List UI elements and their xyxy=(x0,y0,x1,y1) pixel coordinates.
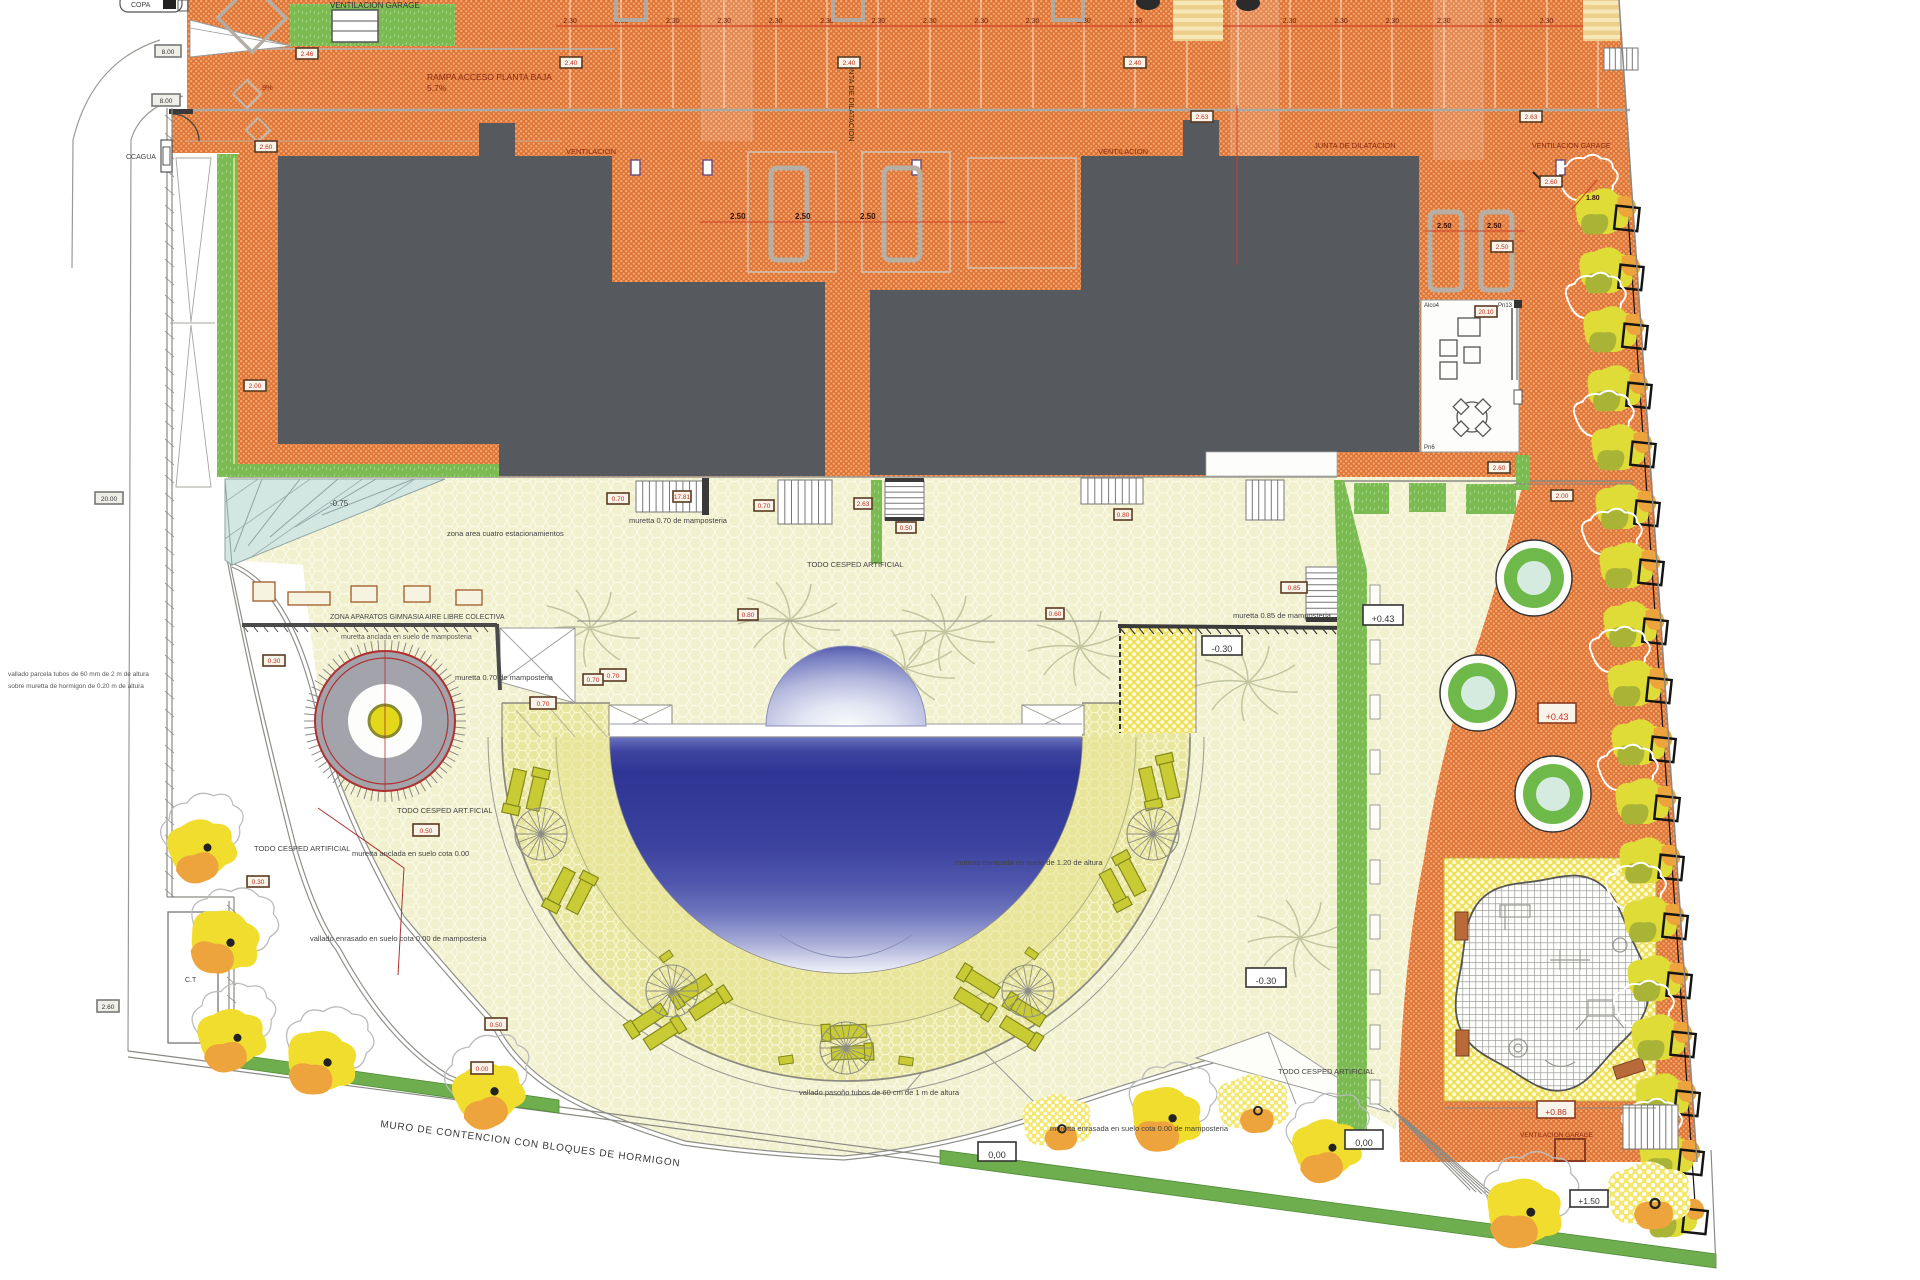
svg-text:+0.43: +0.43 xyxy=(1372,614,1395,624)
svg-text:0.50: 0.50 xyxy=(490,1022,503,1029)
svg-text:20.10: 20.10 xyxy=(1478,310,1494,316)
svg-text:2.00: 2.00 xyxy=(249,383,262,390)
svg-text:2.30: 2.30 xyxy=(769,18,783,25)
svg-text:0.30: 0.30 xyxy=(268,658,281,665)
svg-text:2.30: 2.30 xyxy=(666,18,680,25)
svg-text:muretta 0.85 de mamposteria: muretta 0.85 de mamposteria xyxy=(1233,611,1332,620)
svg-text:2.50: 2.50 xyxy=(795,212,811,221)
svg-text:2.30: 2.30 xyxy=(974,18,988,25)
svg-text:2.30: 2.30 xyxy=(923,18,937,25)
svg-text:-0.30: -0.30 xyxy=(1256,976,1277,986)
svg-text:2.30: 2.30 xyxy=(1129,18,1143,25)
svg-text:2.60: 2.60 xyxy=(1493,465,1506,472)
svg-text:2.46: 2.46 xyxy=(301,51,314,58)
svg-text:+1.50: +1.50 xyxy=(1578,1196,1600,1206)
svg-text:muretta anclada en suelo de ma: muretta anclada en suelo de mamposteria xyxy=(341,634,472,641)
svg-text:2.30: 2.30 xyxy=(1283,18,1297,25)
svg-text:2.50: 2.50 xyxy=(1496,244,1509,251)
svg-text:VENTILACION: VENTILACION xyxy=(566,147,616,156)
svg-text:2.50: 2.50 xyxy=(1437,221,1452,230)
svg-text:2.00: 2.00 xyxy=(1556,493,1569,500)
svg-text:2.60: 2.60 xyxy=(102,1004,115,1011)
svg-text:2.63: 2.63 xyxy=(1196,114,1209,121)
svg-text:0.70: 0.70 xyxy=(758,503,771,510)
svg-text:0.80: 0.80 xyxy=(742,612,755,619)
svg-text:RAMPA ACCESO PLANTA BAJA: RAMPA ACCESO PLANTA BAJA xyxy=(427,72,552,82)
svg-text:2.63: 2.63 xyxy=(1525,114,1538,121)
svg-text:2.40: 2.40 xyxy=(1129,60,1142,67)
svg-text:-0.30: -0.30 xyxy=(1212,644,1233,654)
svg-text:2.30: 2.30 xyxy=(1386,18,1400,25)
svg-text:8.00: 8.00 xyxy=(160,98,173,105)
svg-text:VENTILACION GARAGE: VENTILACION GARAGE xyxy=(1520,1132,1594,1139)
svg-text:JUNTA DE DILATACION: JUNTA DE DILATACION xyxy=(847,60,856,142)
svg-text:2.40: 2.40 xyxy=(565,60,578,67)
svg-text:vallado pasoño tubos de 60 cm: vallado pasoño tubos de 60 cm de 1 m de … xyxy=(799,1088,960,1097)
svg-text:2.30: 2.30 xyxy=(563,18,577,25)
svg-text:JUNTA DE DILATACION: JUNTA DE DILATACION xyxy=(1314,141,1396,150)
svg-text:2.40: 2.40 xyxy=(843,60,856,67)
svg-text:0.70: 0.70 xyxy=(612,496,625,503)
svg-text:17.81: 17.81 xyxy=(674,494,691,501)
svg-text:2.50: 2.50 xyxy=(730,212,746,221)
svg-text:VENTILACION GARAGE: VENTILACION GARAGE xyxy=(330,1,420,10)
svg-text:1.80: 1.80 xyxy=(1586,195,1600,202)
svg-text:muretta 0.70 de mamposteria: muretta 0.70 de mamposteria xyxy=(629,516,728,525)
svg-text:COPA: COPA xyxy=(131,2,151,9)
svg-text:0,00: 0,00 xyxy=(1355,1138,1373,1148)
svg-text:0.50: 0.50 xyxy=(900,525,913,532)
svg-text:zona area cuatro estacionamien: zona area cuatro estacionamientos xyxy=(447,529,564,538)
svg-text:TODO CESPED ARTIFICIAL: TODO CESPED ARTIFICIAL xyxy=(1278,1067,1374,1076)
svg-text:0.00: 0.00 xyxy=(476,1066,489,1073)
svg-text:TODO CESPED ARTIFICIAL: TODO CESPED ARTIFICIAL xyxy=(807,560,903,569)
svg-text:2.50: 2.50 xyxy=(1487,221,1502,230)
svg-text:2.30: 2.30 xyxy=(1334,18,1348,25)
svg-text:muretta anclada en suelo cota: muretta anclada en suelo cota 0.00 xyxy=(352,849,469,858)
svg-text:0.70: 0.70 xyxy=(587,677,600,684)
svg-text:2.30: 2.30 xyxy=(1026,18,1040,25)
svg-text:0.30: 0.30 xyxy=(252,879,265,886)
svg-text:2.30: 2.30 xyxy=(717,18,731,25)
svg-text:2.63: 2.63 xyxy=(857,501,870,508)
svg-text:ZONA APARATOS GIMNASIA AIRE LI: ZONA APARATOS GIMNASIA AIRE LIBRE COLECT… xyxy=(330,614,505,621)
svg-text:2.30: 2.30 xyxy=(872,18,886,25)
svg-text:0.70: 0.70 xyxy=(537,701,550,708)
svg-text:2.30: 2.30 xyxy=(1437,18,1451,25)
svg-text:0,00: 0,00 xyxy=(988,1150,1006,1160)
svg-text:+0.43: +0.43 xyxy=(1546,712,1569,722)
svg-text:8.00: 8.00 xyxy=(162,49,175,56)
svg-text:20.00: 20.00 xyxy=(101,496,118,503)
svg-text:9%: 9% xyxy=(262,83,273,92)
svg-text:2.50: 2.50 xyxy=(860,212,876,221)
svg-text:0.60: 0.60 xyxy=(1049,611,1062,618)
svg-text:0.80: 0.80 xyxy=(1117,512,1130,519)
svg-text:2.60: 2.60 xyxy=(260,144,273,151)
svg-text:muretta enrasada en suelo cota: muretta enrasada en suelo cota 0.00 de m… xyxy=(1050,1124,1229,1133)
svg-text:muretta 0.70 de mamposteria: muretta 0.70 de mamposteria xyxy=(455,673,554,682)
svg-text:0.85: 0.85 xyxy=(1288,585,1301,592)
svg-text:0.70: 0.70 xyxy=(607,673,620,680)
svg-text:-0.75: -0.75 xyxy=(330,499,349,508)
svg-text:TODO CESPED ARTIFICIAL: TODO CESPED ARTIFICIAL xyxy=(254,844,350,853)
svg-text:VENTILACION GARAGE: VENTILACION GARAGE xyxy=(1532,143,1611,150)
svg-text:VENTILACION: VENTILACION xyxy=(1098,147,1148,156)
svg-text:Pn13: Pn13 xyxy=(1498,303,1513,309)
svg-text:muretta enrasada en suelo de 1: muretta enrasada en suelo de 1.20 de alt… xyxy=(955,858,1103,867)
svg-text:5.7%: 5.7% xyxy=(427,83,447,93)
svg-text:0.50: 0.50 xyxy=(420,828,433,835)
svg-text:Pn6: Pn6 xyxy=(1424,445,1435,451)
svg-text:C.T: C.T xyxy=(185,977,197,984)
svg-text:CCAGUA: CCAGUA xyxy=(126,154,156,161)
svg-text:vallado parcela tubos de 60 mm: vallado parcela tubos de 60 mm de 2 m de… xyxy=(8,671,149,678)
svg-text:sobre muretta de hormigon de 0: sobre muretta de hormigon de 0.20 m de a… xyxy=(8,683,144,690)
svg-text:2.60: 2.60 xyxy=(1545,179,1558,186)
svg-text:2.30: 2.30 xyxy=(1540,18,1554,25)
svg-text:2.30: 2.30 xyxy=(1488,18,1502,25)
svg-text:+0.86: +0.86 xyxy=(1545,1107,1567,1117)
svg-text:Alco4: Alco4 xyxy=(1424,303,1440,309)
svg-text:TODO CESPED ART.FICIAL: TODO CESPED ART.FICIAL xyxy=(397,806,493,815)
svg-text:vallado enrasado en suelo cota: vallado enrasado en suelo cota 0.00 de m… xyxy=(310,934,487,943)
